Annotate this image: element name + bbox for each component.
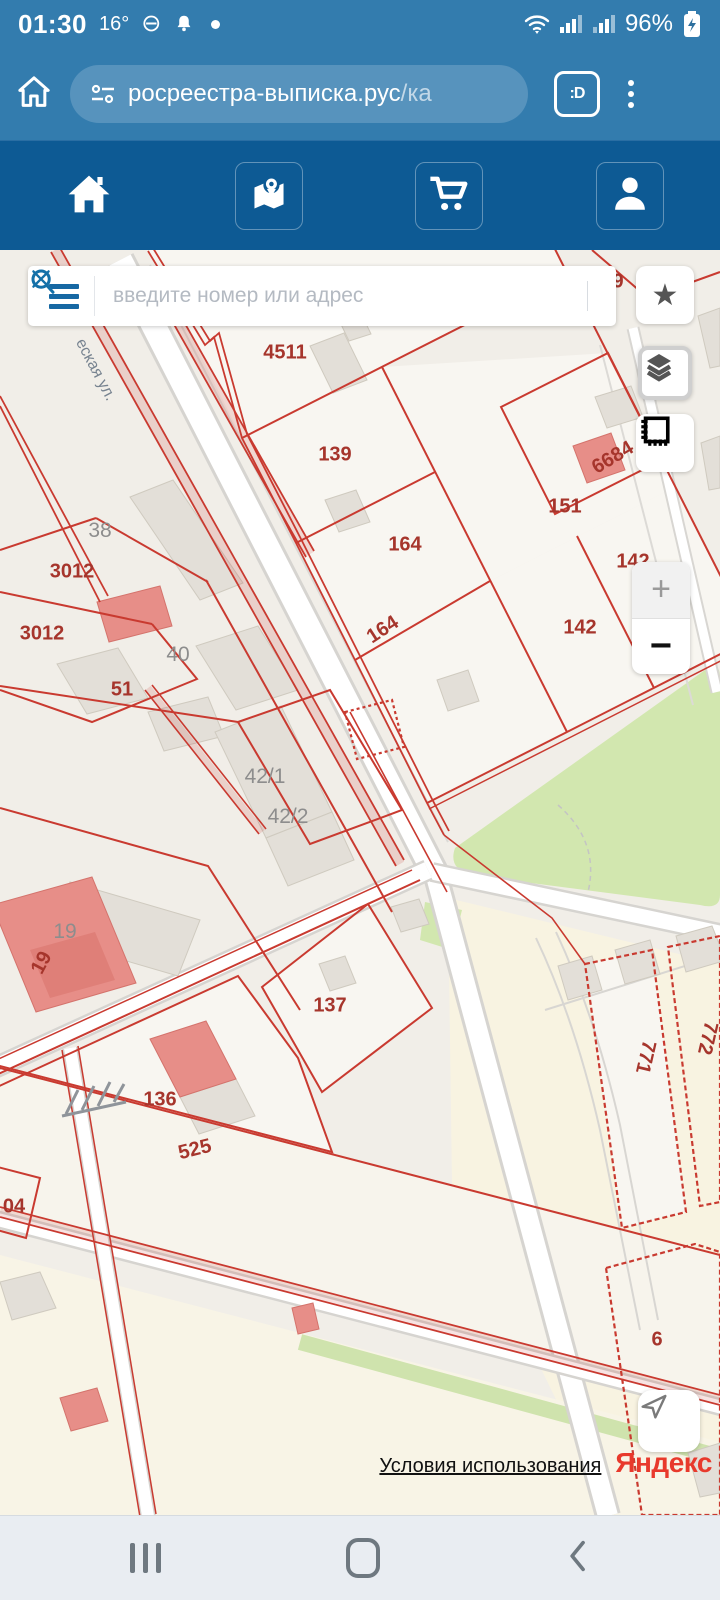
tabs-button[interactable]: :D	[554, 71, 600, 117]
android-home-button[interactable]	[346, 1538, 380, 1578]
parcel-label: 139	[318, 444, 351, 467]
parcel-label: 142	[563, 617, 596, 640]
url-bar[interactable]: росреестра-выписка.рус/ка	[70, 65, 528, 123]
terms-of-use-link[interactable]: Условия использования	[379, 1455, 601, 1478]
browser-menu-icon[interactable]	[628, 80, 634, 108]
parcel-label: 3012	[50, 561, 95, 584]
favorites-button[interactable]: ★	[636, 266, 694, 324]
battery-percent: 96%	[625, 10, 673, 38]
site-navbar	[0, 140, 720, 251]
locate-me-button[interactable]	[638, 1390, 700, 1452]
url-path: /ка	[401, 80, 432, 107]
clock: 01:30	[18, 9, 87, 40]
search-input[interactable]	[94, 276, 575, 316]
nav-cart-button[interactable]	[415, 162, 483, 230]
wifi-icon	[524, 13, 550, 35]
nav-home-button[interactable]	[56, 163, 122, 229]
profile-icon	[609, 173, 651, 220]
cart-icon	[427, 173, 471, 220]
parcel-label: 6	[651, 1329, 662, 1352]
house-number-label: 38	[88, 519, 111, 543]
parcel-label: 164	[388, 534, 421, 557]
temperature: 16°	[99, 13, 129, 36]
map-marker-icon	[248, 173, 290, 220]
notification-dot-icon	[211, 20, 220, 29]
divider	[587, 281, 588, 311]
status-bar: 01:30 16° ⊖ 96%	[0, 0, 720, 48]
parcel-label: 137	[313, 995, 346, 1018]
signal-strength-2-icon	[592, 13, 616, 35]
home-icon	[63, 170, 115, 223]
android-navbar	[0, 1515, 720, 1600]
map-search-bar	[28, 266, 616, 326]
browser-toolbar: росреестра-выписка.рус/ка :D	[0, 48, 720, 140]
measure-button[interactable]	[636, 414, 694, 472]
parcel-label: 4511	[263, 342, 306, 365]
back-button[interactable]	[564, 1539, 590, 1578]
house-number-label: 40	[166, 643, 189, 667]
parcel-label: 136	[143, 1089, 176, 1112]
parcel-label: 04	[3, 1196, 25, 1219]
zoom-out-button[interactable]: −	[632, 619, 690, 675]
browser-home-icon[interactable]	[14, 72, 54, 117]
nav-map-button[interactable]	[235, 162, 303, 230]
tab-count-badge: :D	[570, 85, 585, 103]
site-settings-icon	[90, 84, 116, 104]
star-icon: ★	[652, 278, 679, 313]
recents-button[interactable]	[130, 1543, 161, 1573]
url-host: росреестра-выписка.рус	[128, 80, 401, 107]
house-number-label: 42/2	[268, 805, 309, 829]
map-viewport: 9 4511 139 164 164 151 6684 142 142 3012…	[0, 250, 720, 1515]
parcel-label: 3012	[20, 623, 65, 646]
nav-profile-button[interactable]	[596, 162, 664, 230]
parcel-label: 51	[111, 679, 133, 702]
zoom-control: + −	[632, 562, 690, 674]
house-number-label: 42/1	[245, 765, 286, 789]
house-number-label: 19	[53, 920, 76, 944]
battery-charging-icon	[682, 10, 702, 38]
alarm-bell-icon	[173, 13, 195, 35]
map-canvas[interactable]	[0, 250, 720, 1515]
signal-strength-icon	[559, 13, 583, 35]
parcel-label: 151	[548, 496, 581, 519]
zoom-in-button[interactable]: +	[632, 562, 690, 619]
layers-button[interactable]	[638, 346, 692, 400]
do-not-disturb-icon: ⊖	[141, 12, 161, 36]
